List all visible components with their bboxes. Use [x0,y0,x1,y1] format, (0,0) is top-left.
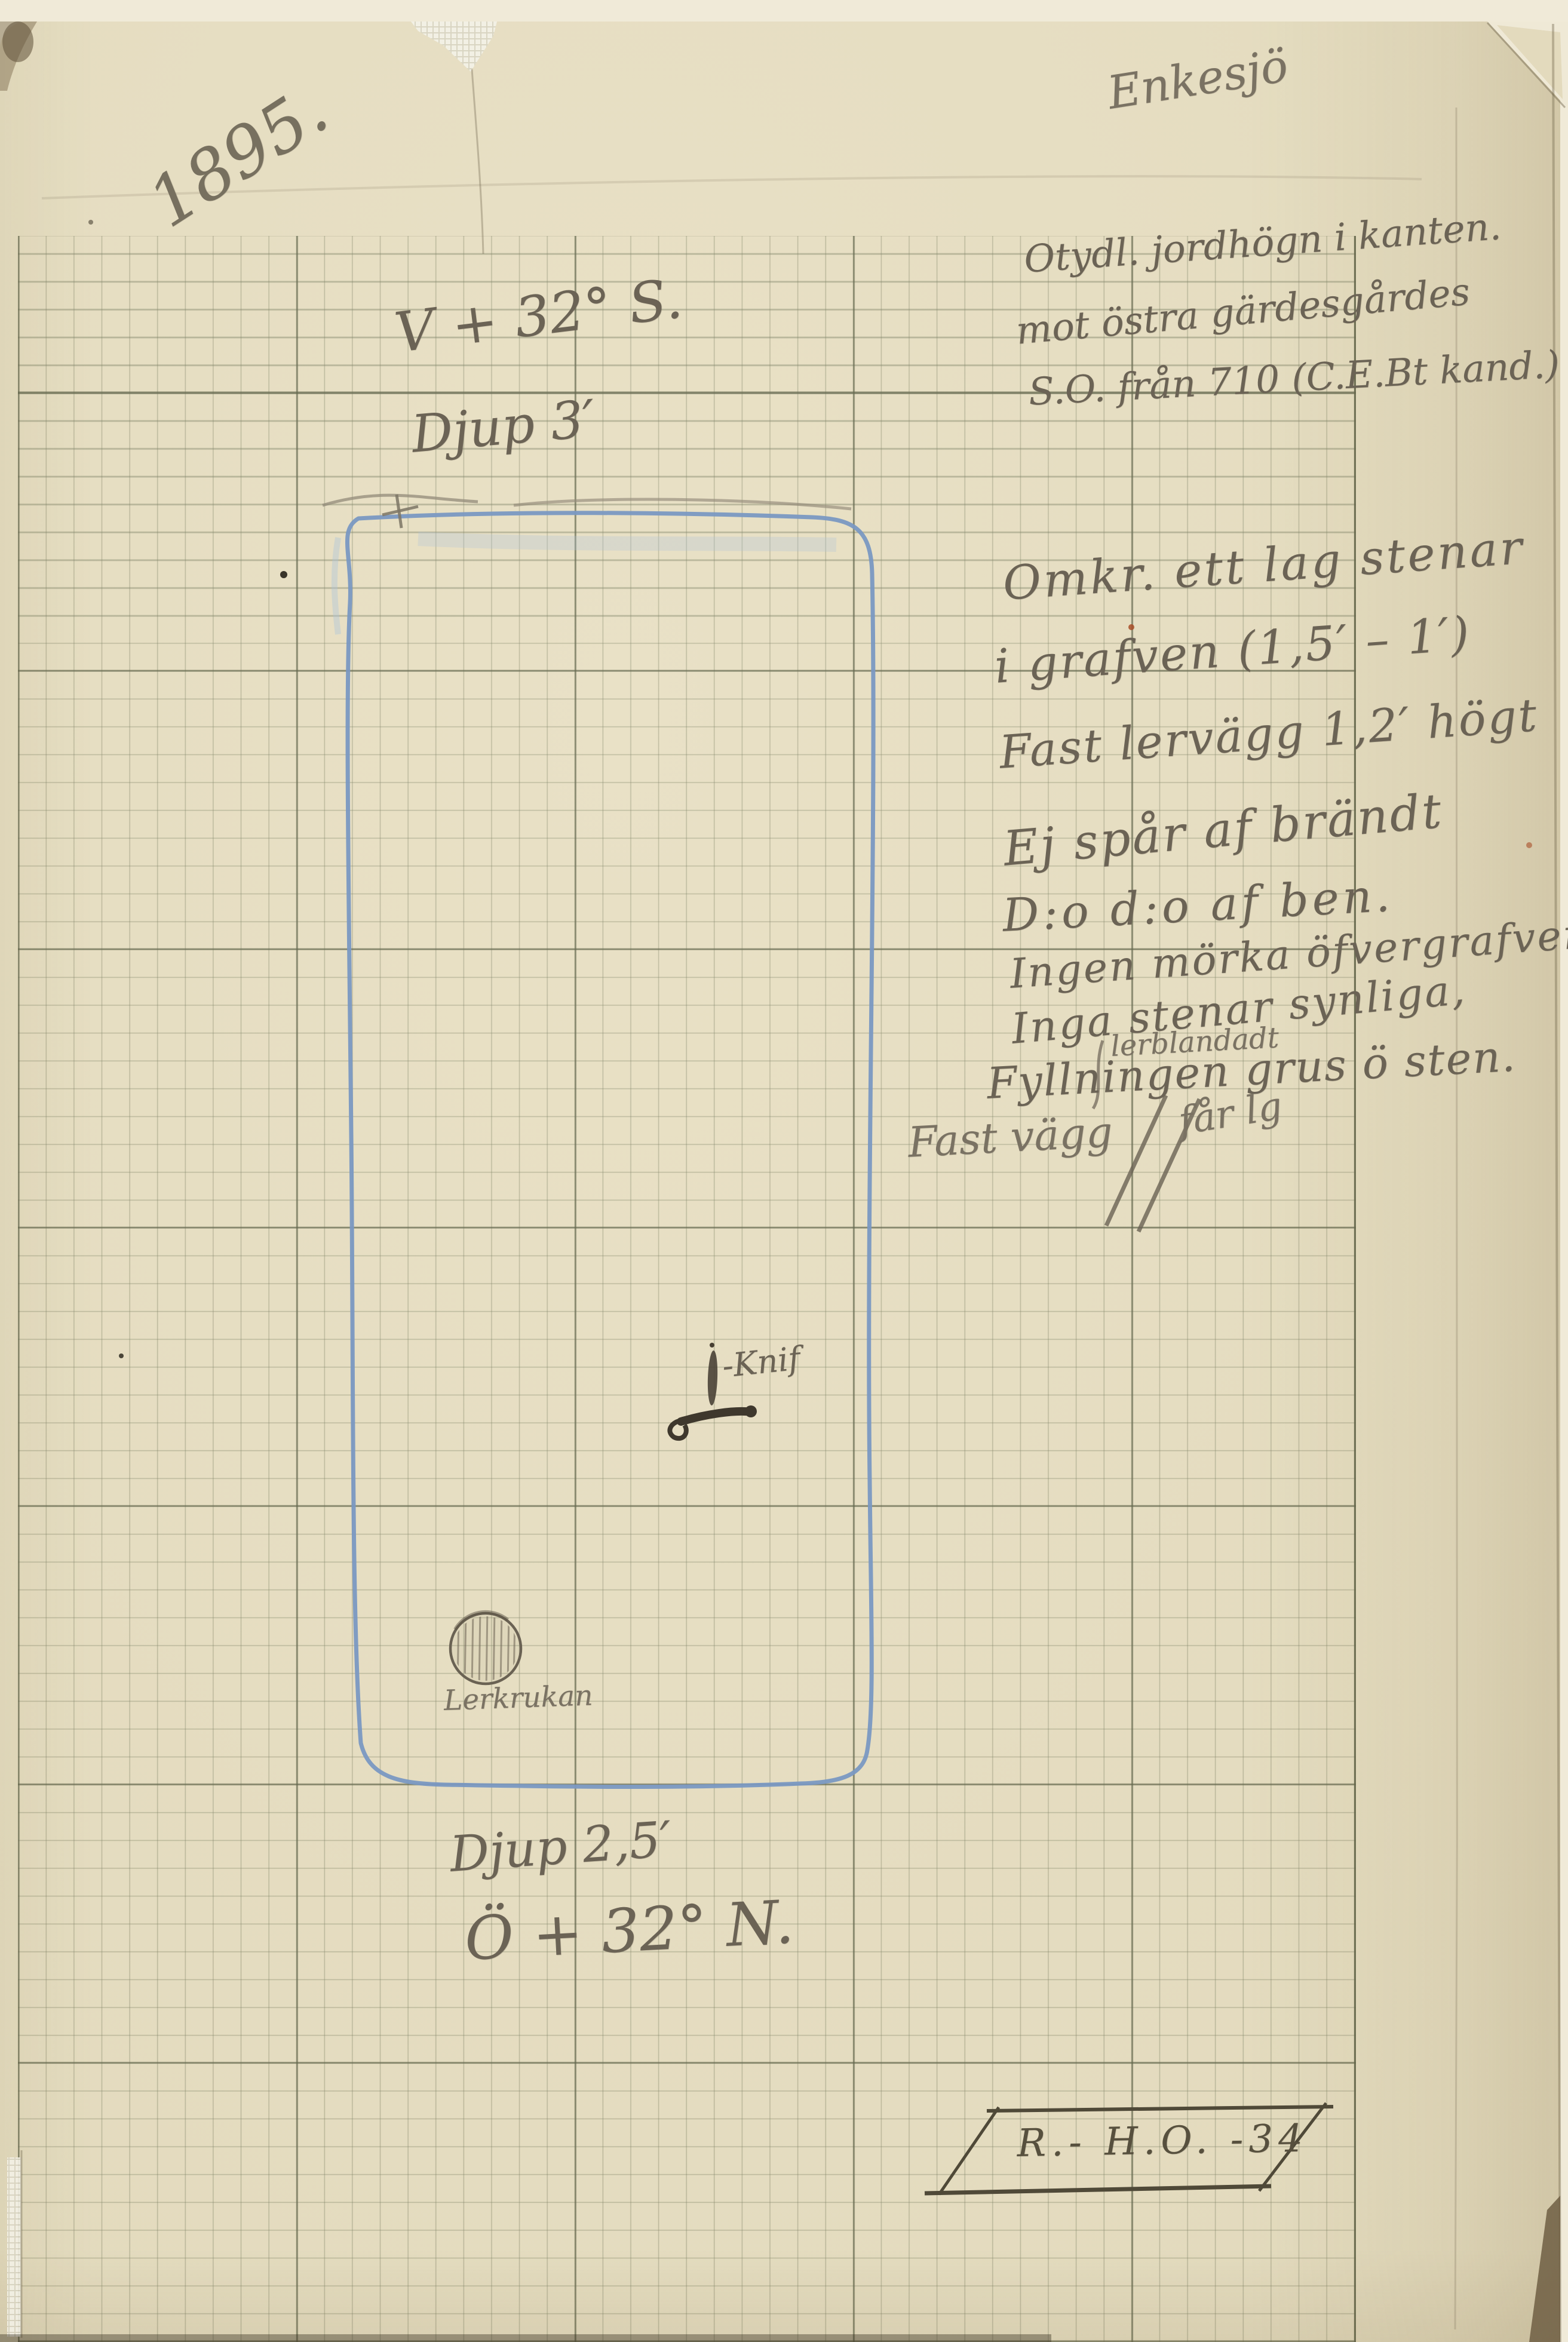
scanned-field-note-page: 1895. Enkesjö Otydl. jordhögn i kanten. … [0,0,1568,2342]
clay-pot-label: Lerkrukan [443,1679,593,1717]
id-box-label: R.- H.O. -34 [1017,2116,1308,2165]
